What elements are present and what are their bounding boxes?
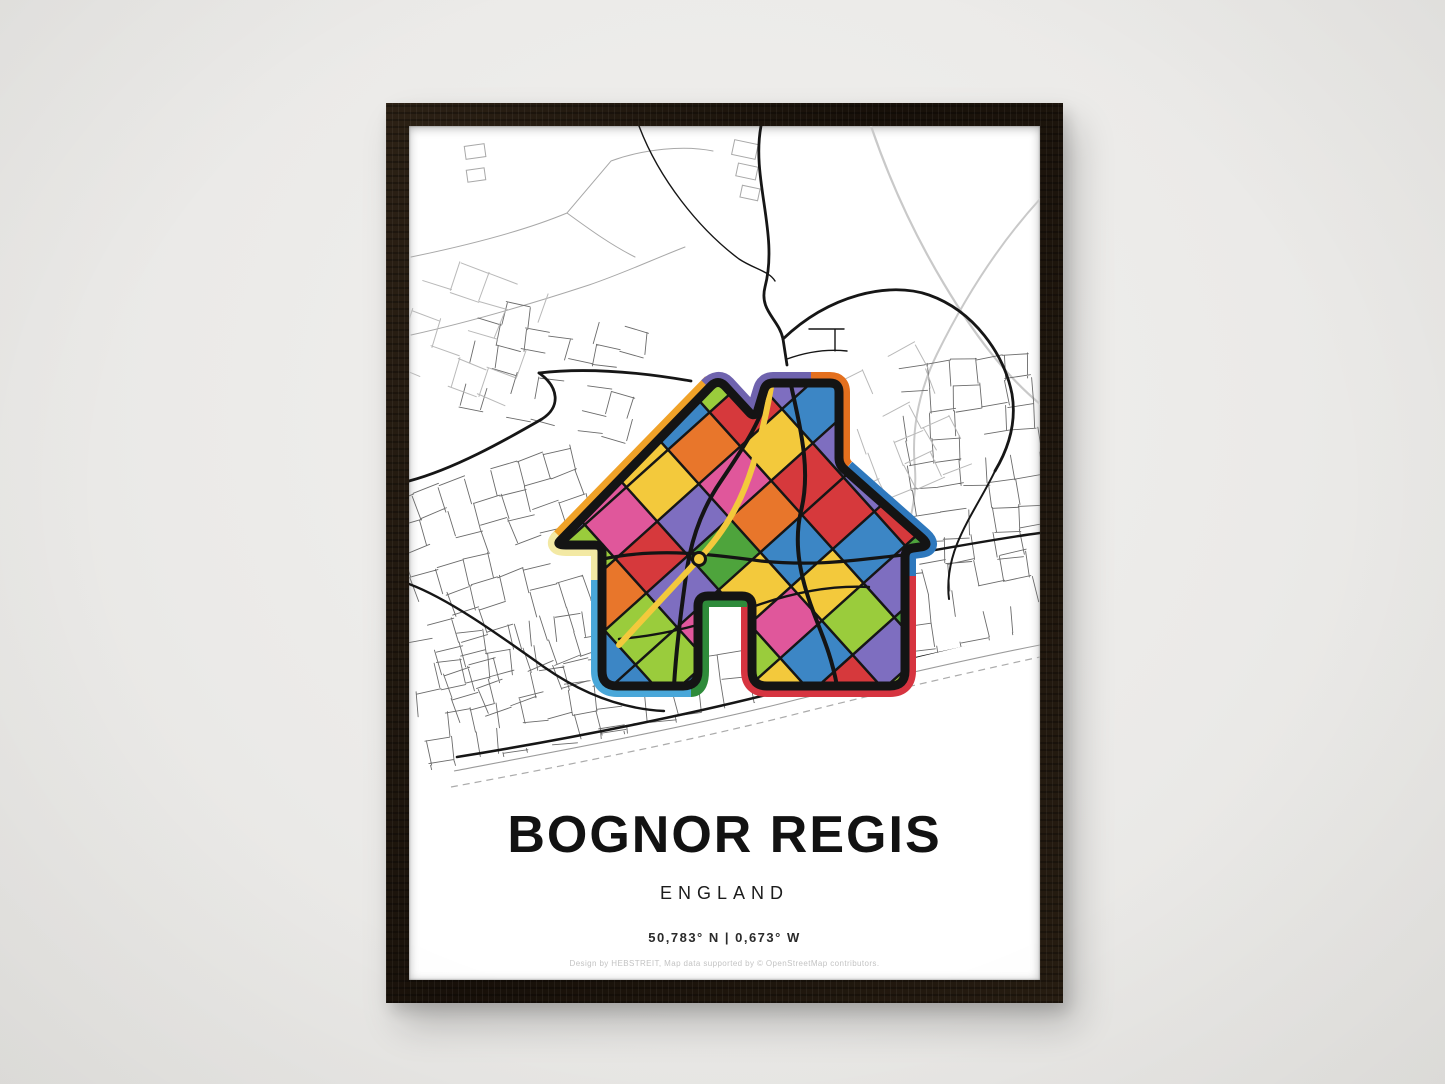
map-poster: BOGNOR REGIS ENGLAND 50,783° N | 0,673° … — [409, 126, 1040, 980]
caption-block: BOGNOR REGIS ENGLAND 50,783° N | 0,673° … — [409, 809, 1040, 945]
house-interior — [409, 160, 1040, 792]
poster-coordinates: 50,783° N | 0,673° W — [409, 930, 1040, 945]
street-map — [409, 126, 1040, 792]
roundabout — [693, 553, 706, 566]
picture-frame: BOGNOR REGIS ENGLAND 50,783° N | 0,673° … — [386, 103, 1063, 1003]
railway-line — [871, 126, 1040, 551]
field-boundaries — [411, 140, 760, 335]
poster-title: BOGNOR REGIS — [409, 809, 1040, 861]
poster-credit: Design by HEBSTREIT, Map data supported … — [409, 959, 1040, 968]
wall: BOGNOR REGIS ENGLAND 50,783° N | 0,673° … — [0, 0, 1445, 1084]
street-cluster — [409, 252, 548, 408]
poster-subtitle: ENGLAND — [409, 883, 1040, 904]
